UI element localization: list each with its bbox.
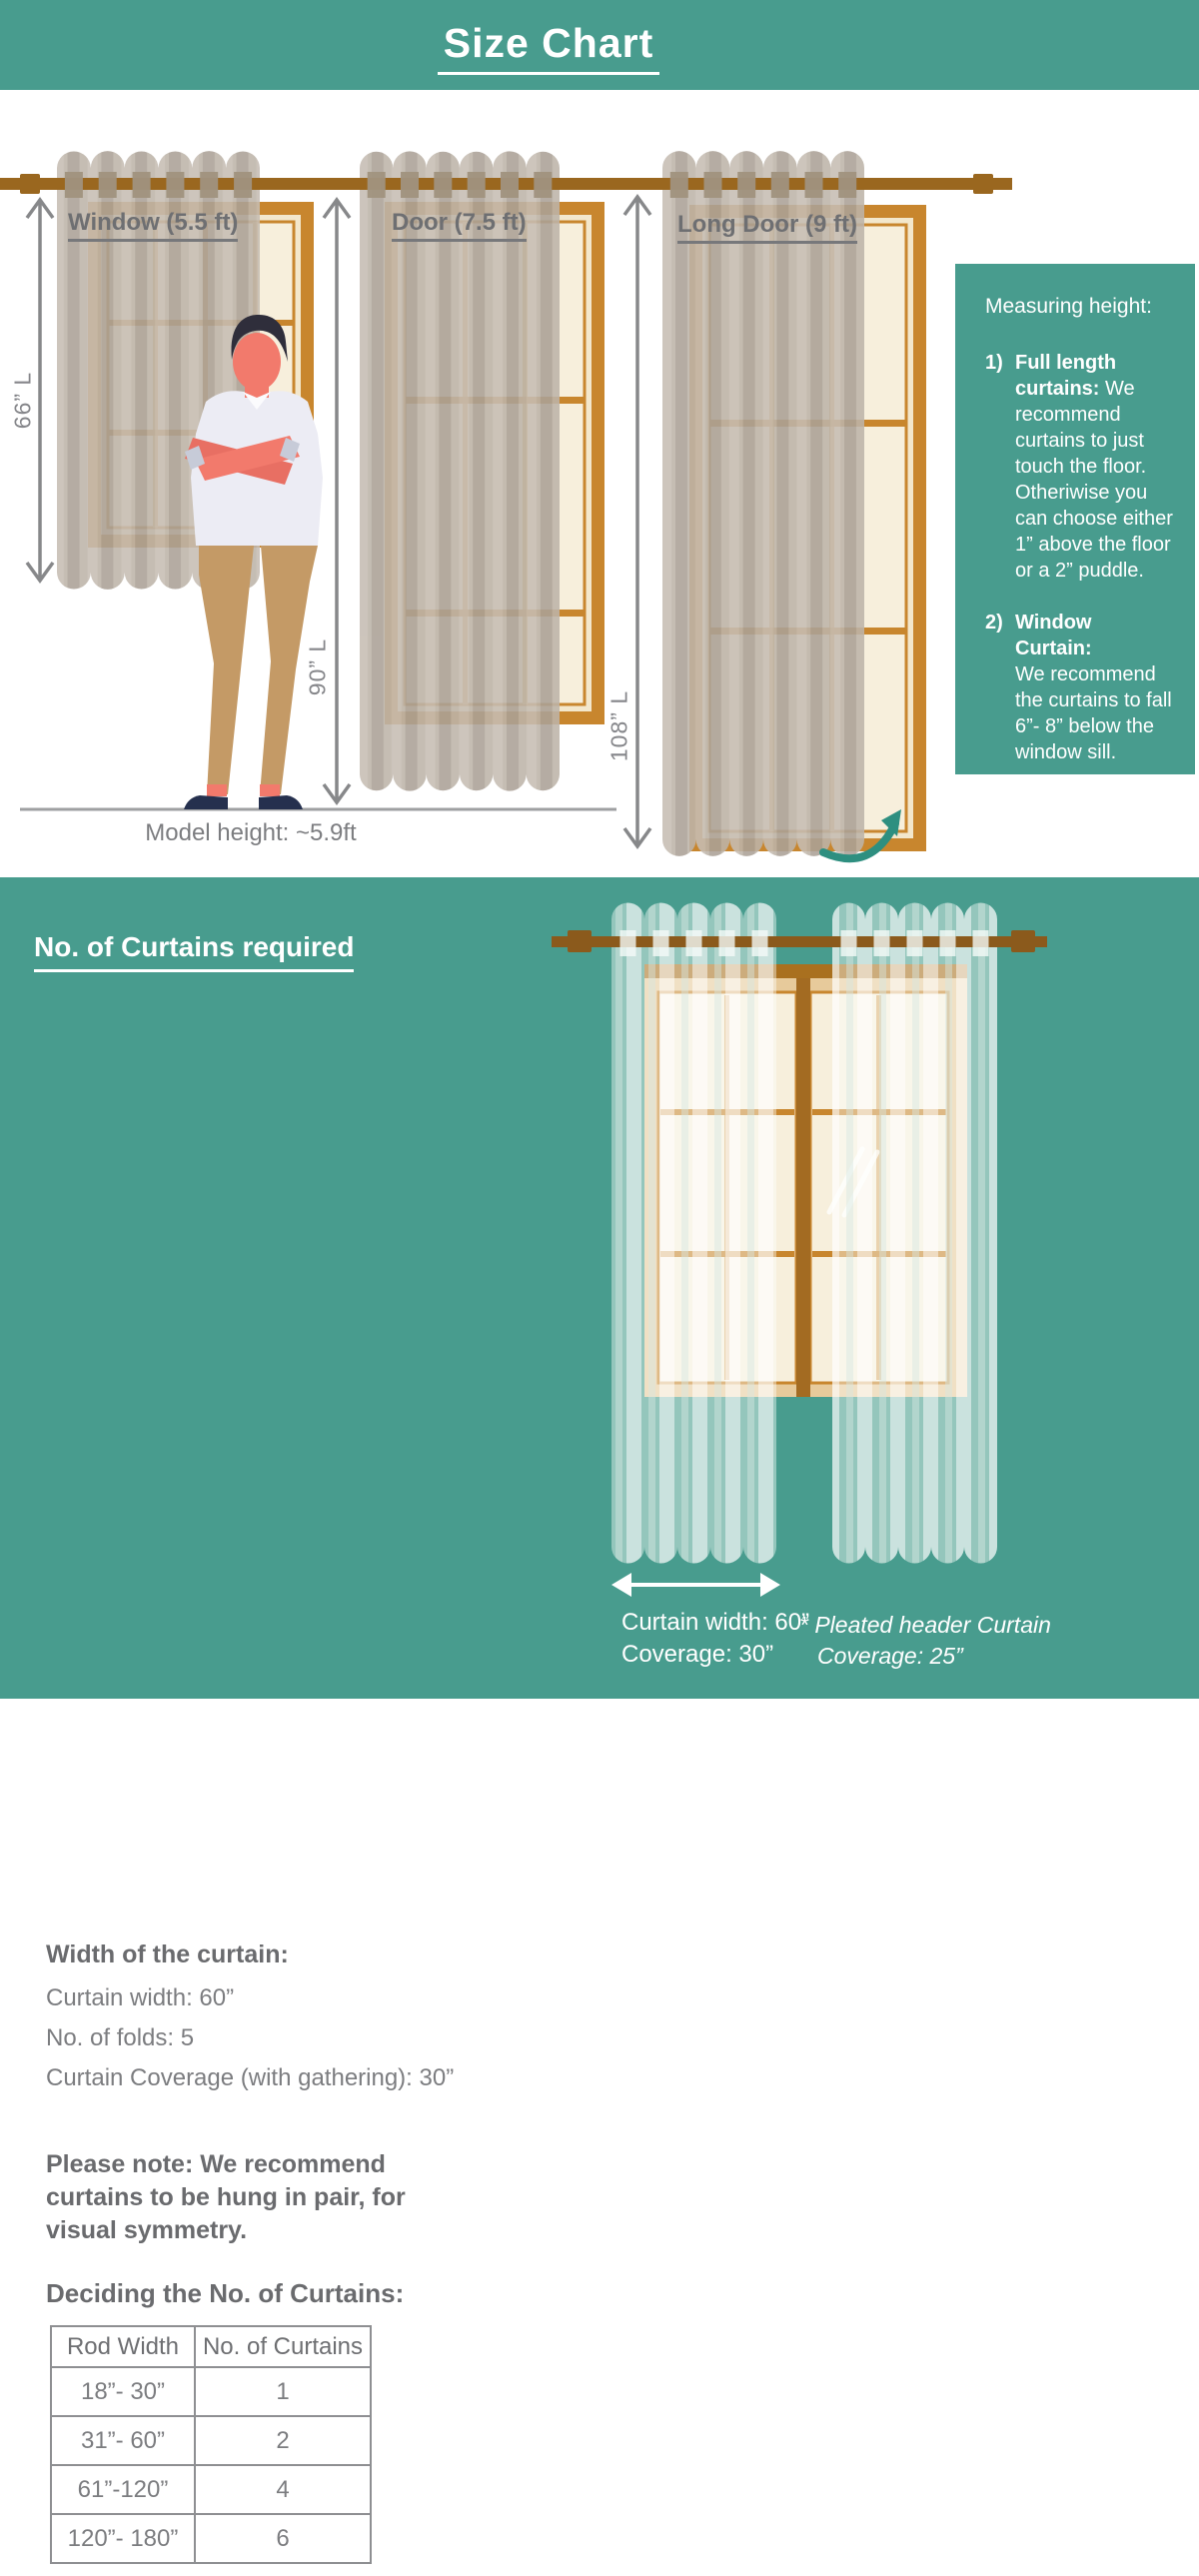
item-2-body: Window Curtain:We recommend the curtains… [1007, 610, 1179, 765]
pair-curtains-illustration [0, 877, 1199, 1699]
curtain-shapes [57, 151, 864, 856]
infographic-page: Size Chart [0, 0, 1199, 1699]
measuring-box-title: Measuring height: [985, 294, 1179, 320]
table-header-row: Rod Width No. of Curtains [51, 2326, 371, 2367]
count-cell: 2 [195, 2416, 371, 2465]
table-row: 31”- 60” 2 [51, 2416, 371, 2465]
page-title: Size Chart [438, 20, 660, 75]
col-rod-width: Rod Width [51, 2326, 195, 2367]
shoe-left [184, 795, 228, 809]
measuring-item-1: 1) Full length curtains: We recommend cu… [985, 350, 1179, 584]
pair-note: Please note: We recommend curtains to be… [46, 2148, 482, 2247]
item-1-bold: Full length curtains: [1015, 352, 1116, 400]
count-cell: 1 [195, 2367, 371, 2416]
sheer-curtain-left [611, 903, 776, 1564]
sheer-curtain-right [832, 903, 997, 1564]
curtains-required-heading: No. of Curtains required [34, 931, 354, 972]
rod-width-cell: 61”-120” [51, 2465, 195, 2514]
sock-left [207, 784, 227, 796]
sock-right [260, 784, 280, 796]
header-band: Size Chart [0, 0, 1199, 90]
curtain-width-line: Curtain width: 60” [46, 1984, 234, 2012]
count-cell: 6 [195, 2514, 371, 2563]
measuring-item-2: 2) Window Curtain:We recommend the curta… [985, 610, 1179, 765]
table-row: 18”- 30” 1 [51, 2367, 371, 2416]
table-row: 61”-120” 4 [51, 2465, 371, 2514]
item-1-text: We recommend curtains to just touch the … [1015, 378, 1173, 582]
label-door: Door (7.5 ft) [392, 209, 527, 242]
curtain-count-table: Rod Width No. of Curtains 18”- 30” 1 31”… [50, 2325, 372, 2564]
curtain-90in [360, 151, 560, 790]
label-long-door: Long Door (9 ft) [677, 211, 857, 244]
curtain-width-value: Curtain width: 60” [621, 1607, 809, 1639]
measuring-height-box: Measuring height: 1) Full length curtain… [955, 264, 1195, 774]
length-label-66: 66” L [10, 341, 37, 461]
folds-line: No. of folds: 5 [46, 2024, 194, 2052]
face [233, 333, 281, 391]
table-row: 120”- 180” 6 [51, 2514, 371, 2563]
item-1-body: Full length curtains: We recommend curta… [1007, 350, 1179, 584]
count-cell: 4 [195, 2465, 371, 2514]
rod-width-cell: 31”- 60” [51, 2416, 195, 2465]
item-2-text: We recommend the curtains to fall 6”- 8”… [1015, 663, 1172, 763]
curtain-108in [662, 151, 864, 856]
length-label-108: 108” L [606, 666, 633, 786]
curtain-width-annotation: Curtain width: 60” Coverage: 30” [621, 1607, 809, 1671]
label-window: Window (5.5 ft) [68, 209, 238, 242]
curtains-required-section: No. of Curtains required Width of the cu… [0, 877, 1199, 1699]
width-of-curtain-title: Width of the curtain: [46, 1940, 289, 1969]
rod-width-cell: 18”- 30” [51, 2367, 195, 2416]
model-height-label: Model height: ~5.9ft [131, 819, 371, 847]
col-no-of-curtains: No. of Curtains [195, 2326, 371, 2367]
rod-width-cell: 120”- 180” [51, 2514, 195, 2563]
shoe-right [259, 795, 303, 809]
item-1-number: 1) [985, 350, 1007, 584]
pleated-note-line2: Coverage: 25” [799, 1641, 1051, 1672]
deciding-table-title: Deciding the No. of Curtains: [46, 2278, 404, 2309]
coverage-line: Curtain Coverage (with gathering): 30” [46, 2064, 454, 2092]
pleated-header-note: * Pleated header Curtain Coverage: 25” [799, 1610, 1051, 1672]
curtains-info-card: Width of the curtain: Curtain width: 60”… [22, 1869, 518, 2576]
title-wrap: Size Chart [0, 20, 1097, 75]
item-2-bold: Window Curtain: [1015, 610, 1115, 661]
length-label-90: 90” L [305, 608, 332, 727]
coverage-value: Coverage: 30” [621, 1639, 809, 1671]
width-arrow [611, 1573, 780, 1597]
item-2-number: 2) [985, 610, 1007, 765]
pleated-note-line1: * Pleated header Curtain [799, 1610, 1051, 1641]
